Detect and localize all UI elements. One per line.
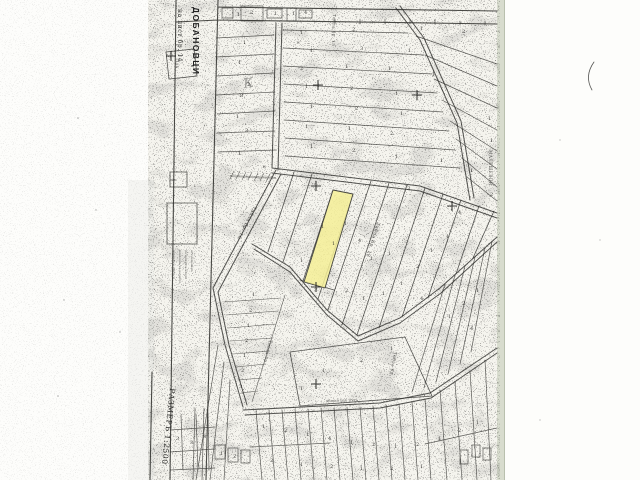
parcel-number: 2 xyxy=(241,368,244,374)
parcel-number: 1 xyxy=(238,60,241,66)
scanned-cadastral-map-page: ДОБАНОВЦИ на лист бр. 14 РАЗМЕРЪ 1:2500 … xyxy=(0,0,640,480)
parcel-number: 1 xyxy=(470,168,473,174)
parcel-number: 1 xyxy=(310,104,313,110)
parcel-number: 1 xyxy=(388,251,391,257)
parcel-number: 4 xyxy=(328,436,331,442)
parcel-number: 3 xyxy=(239,384,242,390)
parcel-number: 1 xyxy=(348,126,351,132)
sheet-number-label: на лист бр. 14 xyxy=(176,9,183,62)
parcel-number: 1 xyxy=(360,466,363,472)
parcel-number: 1 xyxy=(448,314,451,320)
parcel-number: 1 xyxy=(310,144,313,150)
parcel-number: 1 xyxy=(488,116,491,122)
parcel-number: 2 xyxy=(350,86,353,92)
parcel-number: 2 xyxy=(247,82,250,88)
legend-note-line: отъ земемѣра xyxy=(190,250,194,272)
neighbor-village-label: МАЛЕШЕВЦИ xyxy=(488,150,493,186)
parcel-number: 1 xyxy=(400,111,403,117)
parcel-number: 3 xyxy=(190,440,193,446)
parcel-number: 1 xyxy=(345,64,348,70)
benchmark-number: 1484 xyxy=(175,58,179,68)
parcel-number: 2 xyxy=(416,442,419,448)
parcel-number: 1 xyxy=(243,40,246,46)
parcel-number: 1 xyxy=(332,241,335,247)
parcel-number: × xyxy=(262,164,266,170)
parcel-number: 1 xyxy=(306,432,309,438)
parcel-number: 1 xyxy=(300,258,303,264)
parcel-number: 2 xyxy=(462,301,465,307)
parcel-number: 1 xyxy=(400,281,403,287)
parcel-number: 1 xyxy=(382,291,385,297)
parcel-number: 1 xyxy=(476,288,479,294)
parcel-number: 1 xyxy=(236,114,239,120)
parcel-number: 1 xyxy=(252,292,255,298)
parcel-number: 4 xyxy=(358,238,361,244)
legend-note-line: нанесенъ въ размѣръ xyxy=(178,250,182,284)
parcel-number: 1 xyxy=(430,248,433,254)
parcel-number: 2 xyxy=(390,466,393,472)
parcel-number: 1 xyxy=(420,26,423,32)
parcel-number: 3 xyxy=(407,186,410,192)
parcel-number: 1 xyxy=(300,462,303,468)
region-label: ДОБАНОВЦИ xyxy=(191,7,201,75)
parcel-number: 3 xyxy=(245,128,248,134)
parcel-number: 1 xyxy=(395,91,398,97)
parcel-number: 4 xyxy=(458,210,461,216)
parcel-number: 1 xyxy=(420,464,423,470)
parcel-number: 1 xyxy=(490,138,493,144)
legend-note-line: по межди и имоти xyxy=(184,250,188,279)
parcel-number: 2 xyxy=(390,131,393,137)
parcel-number: 4 xyxy=(304,10,307,16)
parcel-number: 1 xyxy=(247,323,250,329)
parcel-number: 1 xyxy=(370,256,373,262)
parcel-number: 3 xyxy=(176,436,179,442)
parcel-number: 2 xyxy=(245,338,248,344)
parcel-number: 1 xyxy=(344,221,347,227)
parcel-number: 1 xyxy=(408,48,411,54)
parcel-number: 2 xyxy=(458,428,461,434)
parcel-number: 3 xyxy=(360,46,363,52)
parcel-number: 1 xyxy=(440,158,443,164)
parcel-number: 2 xyxy=(352,148,355,154)
parcel-number: 1 xyxy=(446,234,449,240)
parcel-number: 2 xyxy=(300,66,303,72)
parcel-number: 1 xyxy=(262,424,265,430)
parcel-number: 1 xyxy=(237,12,240,18)
parcel-number: 1 xyxy=(350,440,353,446)
parcel-number: 1 xyxy=(362,296,365,302)
parcel-number: 1 xyxy=(322,368,325,374)
parcel-number: 1 xyxy=(438,436,441,442)
parcel-number: 1 xyxy=(243,353,246,359)
parcel-number: 2 xyxy=(249,308,252,314)
parcel-number: 2 xyxy=(462,29,465,35)
parcel-number: 2 xyxy=(355,106,358,112)
margin-speckle xyxy=(0,0,148,480)
parcel-number: 1 xyxy=(388,66,391,72)
parcel-number: 4 xyxy=(420,296,423,302)
parcel-number: 2 xyxy=(233,454,236,460)
parcel-number: 2 xyxy=(250,10,253,16)
parcel-number: 1 xyxy=(300,30,303,36)
parcel-number: 2 xyxy=(284,428,287,434)
parcel-number: × xyxy=(296,40,300,46)
parcel-number: 1 xyxy=(310,48,313,54)
parcel-number: 2 xyxy=(352,27,355,33)
parcel-number: 2 xyxy=(416,264,419,270)
parcel-number: 8 xyxy=(240,93,243,99)
parcel-number: 2 xyxy=(372,442,375,448)
parcel-number: 1 xyxy=(476,420,479,426)
parcel-number: 1 xyxy=(305,124,308,130)
parcel-number: 2 xyxy=(345,288,348,294)
parcel-number: 1 xyxy=(390,346,393,352)
parcel-number: 2 xyxy=(360,358,363,364)
parcel-number: 3 xyxy=(270,458,273,464)
parcel-number: 4 xyxy=(470,326,473,332)
parcel-number: 1 xyxy=(274,11,277,17)
parcel-number: 1 xyxy=(300,386,303,392)
parcel-number: 1 xyxy=(395,154,398,160)
parcel-number: 1 xyxy=(394,444,397,450)
legend-note-line: планътъ е снетъ и xyxy=(172,250,176,279)
map-scan: ДОБАНОВЦИ на лист бр. 14 РАЗМЕРЪ 1:2500 … xyxy=(0,0,640,480)
parcel-number: 1 xyxy=(238,151,241,157)
parcel-number: 1 xyxy=(432,72,435,78)
parcel-number: 8 xyxy=(203,434,206,440)
parcel-number: 1 xyxy=(305,84,308,90)
parcel-number: 1 xyxy=(321,224,324,230)
parcel-number: 2 xyxy=(490,192,493,198)
parcel-number: 2 xyxy=(330,464,333,470)
parcel-number: 1 xyxy=(292,11,295,17)
parcel-number: 1 xyxy=(220,451,223,457)
